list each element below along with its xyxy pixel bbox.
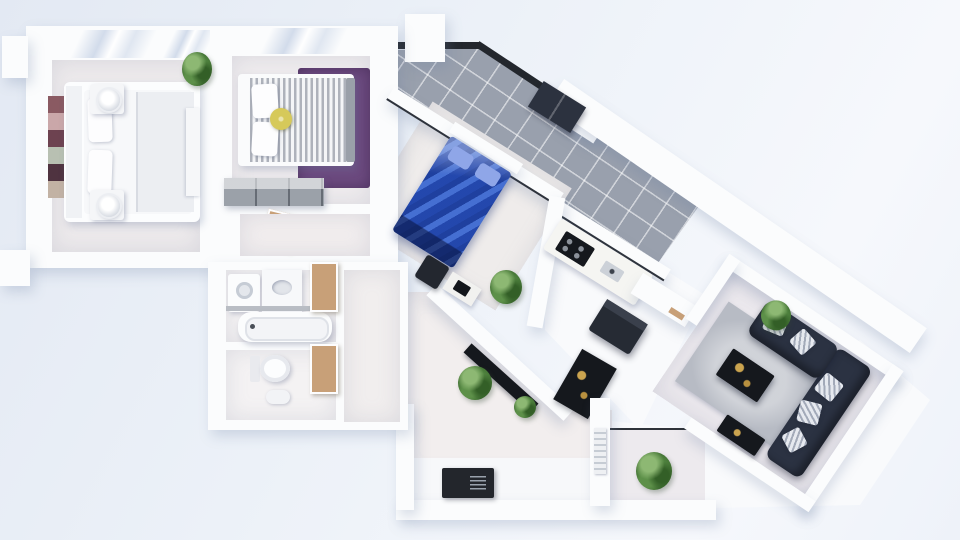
potted-plant (458, 366, 492, 400)
bathroom-corridor-floor (344, 270, 400, 422)
bidet (266, 390, 290, 404)
entrance-doormat (442, 468, 494, 498)
bed-blue-pillow (473, 162, 502, 188)
toilet-bowl (260, 355, 290, 382)
bed-blue-pillow (446, 145, 475, 171)
floor-plan-render (0, 0, 960, 540)
bed-main-headboard (66, 86, 82, 218)
potted-plant (514, 396, 536, 418)
bathtub (238, 312, 332, 342)
table-lamp-icon (98, 89, 120, 111)
bathroom-wood-door (310, 344, 338, 394)
toilet-tank (250, 356, 260, 382)
table-lamp-icon (98, 195, 120, 217)
bed-foot-bench (346, 78, 355, 162)
washer-door-icon (236, 282, 253, 299)
corridor-floor (240, 214, 370, 256)
yellow-round-cushion (270, 108, 292, 130)
left-wall-tab-upper (2, 36, 28, 78)
hallway-bottom-wall (396, 500, 716, 520)
wardrobe-main (186, 108, 200, 196)
bed-main-pillow (87, 150, 113, 195)
potted-plant (182, 52, 212, 86)
laptop-icon (453, 280, 472, 297)
left-wall-tab-lower (0, 250, 30, 286)
window-glass-icon (246, 28, 350, 54)
bath-faucet-icon (250, 324, 255, 329)
dresser (224, 178, 324, 206)
window-glass-icon (58, 30, 158, 58)
doormat-pattern-icon (470, 474, 486, 492)
bathroom-wood-door (310, 262, 338, 312)
potted-plant (490, 270, 522, 304)
chimney-block (405, 14, 445, 62)
shelf-wood-piece (668, 307, 685, 321)
sink-basin-icon (272, 280, 292, 295)
radiator-icon (594, 428, 606, 474)
potted-plant (636, 452, 672, 490)
bathtub-basin-icon (245, 317, 329, 341)
